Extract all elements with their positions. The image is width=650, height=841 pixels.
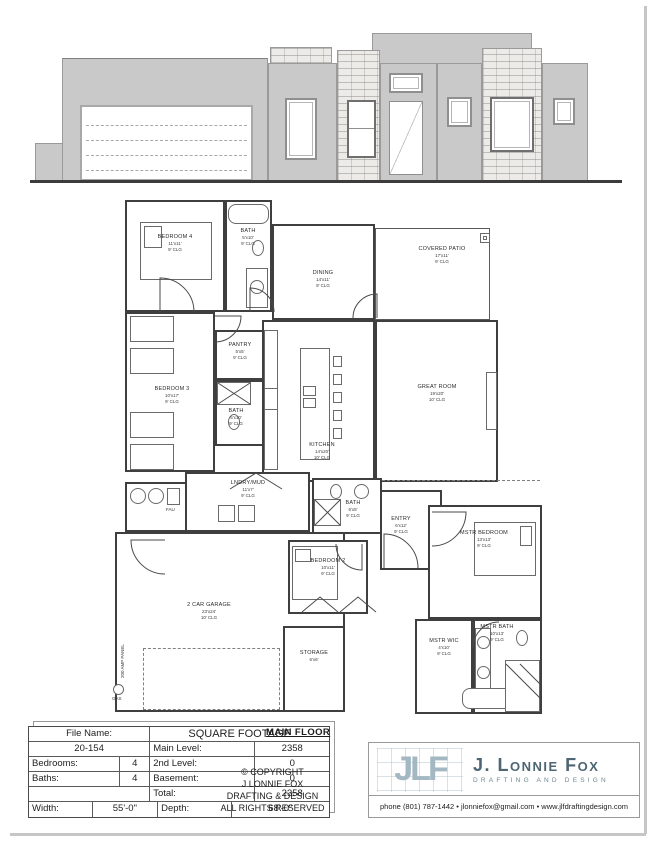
hose-bib-marker: [480, 233, 490, 243]
room-label-laundry: LNDRY/MUD11'x7'9' CLG: [213, 480, 283, 498]
gas-label: GAS: [112, 696, 122, 701]
copyright-line-3: DRAFTING & DESIGN: [200, 790, 345, 802]
bar-stool-1: [333, 356, 342, 367]
master-shower: [505, 660, 540, 712]
table-row: 20-154 Main Level: 2358: [29, 742, 329, 757]
fau-label: FAU: [166, 507, 175, 512]
ground-line: [30, 180, 622, 183]
garage-door: [80, 105, 253, 181]
main-level-value: 2358: [255, 742, 329, 757]
sink-bath-entry: [354, 484, 369, 499]
pillow-master: [520, 526, 532, 546]
room-label-entry: ENTRY6'x12'9' CLG: [368, 516, 434, 534]
fireplace-niche: [486, 372, 497, 430]
jlf-monogram-logo: JLF: [377, 748, 463, 792]
shower-bath-hall: [217, 382, 251, 405]
empty-cell: [29, 787, 150, 802]
island-sink: [303, 386, 316, 396]
width-label: Width:: [29, 802, 93, 817]
room-label-garage: 2 CAR GARAGE23'x24'10' CLG: [174, 602, 244, 620]
baths-label: Baths:: [29, 772, 120, 787]
room-label-storage: STORAGE6'x6': [282, 650, 346, 663]
bedrooms-value: 4: [120, 757, 150, 772]
room-covered-patio: [375, 228, 490, 320]
bar-stool-3: [333, 392, 342, 403]
copyright-line-1: © COPYRIGHT: [200, 766, 345, 778]
amp-panel-label: 200 AMP PANEL: [120, 644, 125, 678]
drawing-sheet: BEDROOM 411'x11'9' CLG BATH5'x10'9' CLG …: [0, 0, 650, 841]
contact-line: phone (801) 787-1442 • jlonniefox@gmail.…: [369, 795, 639, 817]
master-sink-2: [477, 666, 490, 679]
page-edge-right: [644, 6, 647, 834]
tub-bath-top: [228, 204, 269, 224]
copyright-line-2: J LONNIE FOX: [200, 778, 345, 790]
toilet-bath-entry: [330, 484, 342, 499]
bar-stool-2: [333, 374, 342, 385]
room-label-bath-hall: BATH5'x10'9' CLG: [207, 408, 265, 426]
company-tagline: DRAFTING AND DESIGN: [473, 777, 609, 784]
large-window: [490, 97, 534, 152]
room-label-bedroom-3: BEDROOM 310'x17'9' CLG: [137, 386, 207, 404]
logo-box: JLF J. Lonnie Fox DRAFTING AND DESIGN ph…: [368, 742, 640, 818]
stone-band: [270, 47, 332, 64]
tall-window-1: [285, 98, 317, 160]
dryer: [238, 505, 255, 522]
fau-unit: [167, 488, 180, 505]
main-level-label: Main Level:: [150, 742, 255, 757]
island-sink-2: [303, 398, 316, 408]
copyright-block: © COPYRIGHT J LONNIE FOX DRAFTING & DESI…: [200, 766, 345, 815]
baths-value: 4: [120, 772, 150, 787]
width-value: 55'-0": [93, 802, 159, 817]
small-window-1: [447, 97, 472, 127]
gas-meter: [113, 684, 124, 695]
company-name: J. Lonnie Fox: [473, 755, 609, 776]
room-label-master-bath: MSTR BATH10'x13'9' CLG: [462, 624, 532, 642]
copyright-line-4: ALL RIGHTS RESERVED: [200, 802, 345, 814]
kitchen-range: [264, 388, 278, 410]
sink-bath-top: [250, 280, 264, 294]
bedrooms-label: Bedrooms:: [29, 757, 120, 772]
logo-name-block: J. Lonnie Fox DRAFTING AND DESIGN: [473, 755, 609, 784]
room-label-great-room: GREAT ROOM19'x20'10' CLG: [402, 384, 472, 402]
bar-stool-4: [333, 410, 342, 421]
room-label-covered-patio: COVERED PATIO17'x11'9' CLG: [407, 246, 477, 264]
room-label-dining: DINING14'x11'9' CLG: [288, 270, 358, 288]
room-label-master-bedroom: MSTR BEDROOM13'x13'9' CLG: [449, 530, 519, 548]
room-label-pantry: PANTRY5'x5'9' CLG: [211, 342, 269, 360]
water-heater: [130, 488, 146, 504]
file-name-value: 20-154: [29, 742, 150, 757]
bunk-bed-1: [130, 316, 174, 342]
room-label-bath-top: BATH5'x10'9' CLG: [226, 228, 270, 246]
garage-door-dashed: [143, 648, 280, 710]
bunk-bed-2: [130, 348, 174, 374]
transom-window: [389, 73, 423, 93]
bar-stool-5: [333, 428, 342, 439]
room-label-bedroom-2: BEDROOM 210'x11'9' CLG: [293, 558, 363, 576]
small-window-2: [553, 98, 575, 125]
front-door: [389, 101, 423, 175]
elevation-left-stub: [35, 143, 63, 182]
room-storage: [283, 626, 345, 712]
tall-window-2: [347, 100, 376, 158]
washer: [218, 505, 235, 522]
logo-top: JLF J. Lonnie Fox DRAFTING AND DESIGN: [369, 743, 639, 796]
bunk-bed-3: [130, 412, 174, 438]
file-name-label: File Name:: [29, 727, 150, 742]
ceiling-break-dashed: [382, 480, 540, 481]
main-floor-title: MAIN FLOOR: [266, 727, 330, 738]
page-edge-bottom: [10, 833, 646, 836]
bunk-bed-4: [130, 444, 174, 470]
room-label-kitchen: KITCHEN14'x20'10' CLG: [287, 442, 357, 460]
room-label-bedroom-4: BEDROOM 411'x11'9' CLG: [140, 234, 210, 252]
water-softener: [148, 488, 164, 504]
